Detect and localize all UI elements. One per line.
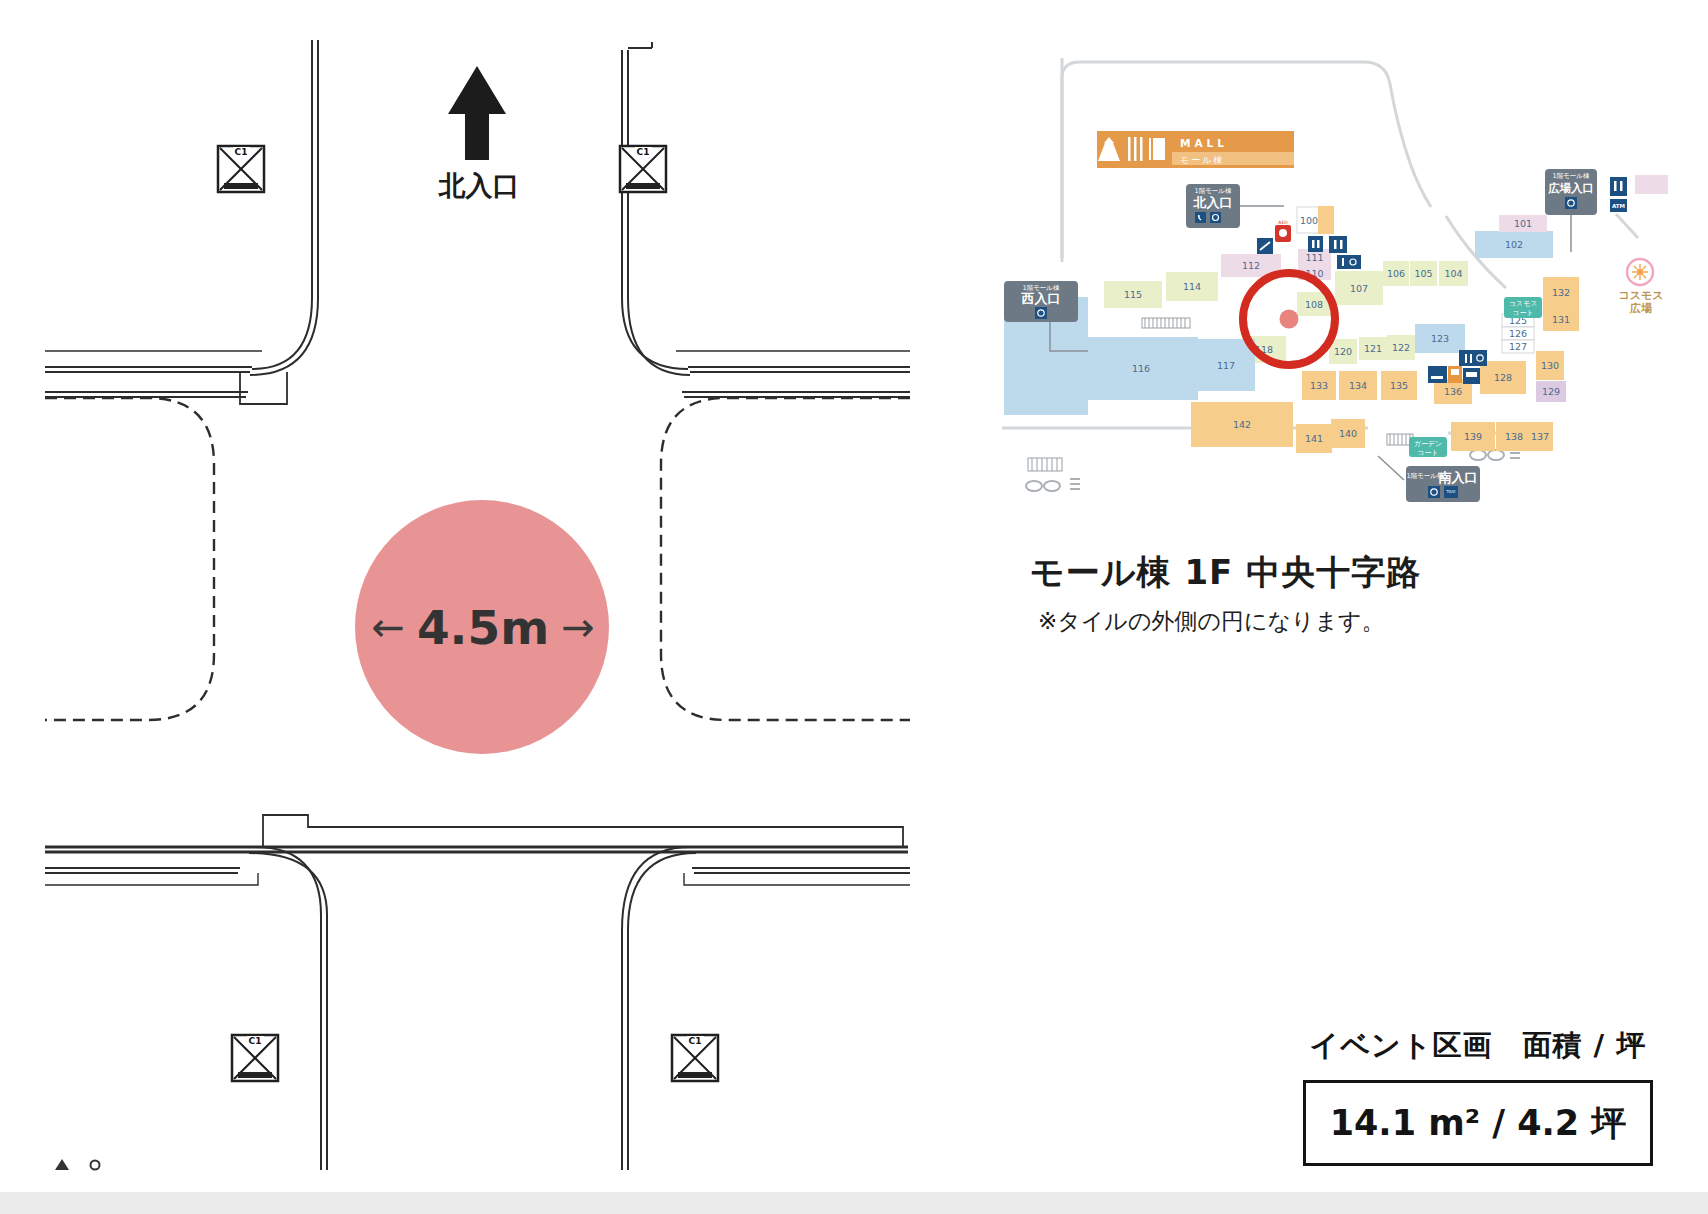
phone-icon xyxy=(1195,212,1206,223)
area-value: 14.1 m² / 4.2 坪 xyxy=(1330,1100,1627,1147)
column-label: C1 xyxy=(249,1036,262,1046)
smoking-icon xyxy=(1428,366,1447,383)
wall-band-bottom xyxy=(45,815,910,885)
atm-icon: ATM xyxy=(1610,199,1627,212)
shop-label: 135 xyxy=(1390,380,1408,391)
highlight-circle xyxy=(1243,273,1335,365)
crosswalk-hatch xyxy=(1028,458,1062,471)
plaza-label: 広場 xyxy=(1629,302,1653,315)
cutlery-icon xyxy=(1128,137,1143,161)
atm-label: ATM xyxy=(1612,203,1625,209)
dashed-zone-right xyxy=(661,398,910,720)
wheelchair-icon xyxy=(1035,307,1047,319)
shop-label: 139 xyxy=(1464,431,1482,442)
copy-machine-icon xyxy=(1463,368,1480,384)
mall-subtitle: モール棟 xyxy=(1180,155,1224,165)
column-marker: C1 xyxy=(218,146,264,192)
survey-marks xyxy=(55,1159,100,1170)
highlight-dot xyxy=(1280,310,1299,329)
shop-label: 126 xyxy=(1509,328,1527,339)
shop-label: 142 xyxy=(1233,419,1251,430)
shop-label: 132 xyxy=(1552,287,1570,298)
restroom-wheelchair-icon xyxy=(1459,350,1487,366)
shop-label: 133 xyxy=(1310,380,1328,391)
court-label: ガーデン xyxy=(1414,440,1443,448)
shop-label: 121 xyxy=(1364,343,1382,354)
shop-label: 140 xyxy=(1339,428,1357,439)
badge-west-entrance: 1階モール棟 西入口 xyxy=(1004,281,1078,322)
vending-icon xyxy=(1448,366,1462,383)
book-icon xyxy=(1149,138,1165,160)
shop-block xyxy=(1318,206,1334,234)
aed-icon: AED xyxy=(1275,220,1291,242)
shop-label: 107 xyxy=(1350,283,1368,294)
area-value-box: 14.1 m² / 4.2 坪 xyxy=(1303,1080,1653,1166)
court-label: コート xyxy=(1512,309,1533,317)
restroom-icon xyxy=(1329,236,1347,253)
court-label: コート xyxy=(1417,449,1438,457)
cosmos-court-badge: コスモス コート xyxy=(1504,297,1542,318)
badge-label: 北入口 xyxy=(1193,195,1233,210)
shop-label: 116 xyxy=(1132,363,1150,374)
column-label: C1 xyxy=(235,147,248,157)
badge-label: 南入口 xyxy=(1438,470,1478,485)
shop-label: 141 xyxy=(1305,433,1323,444)
column-label: C1 xyxy=(689,1036,702,1046)
shop-label: 112 xyxy=(1242,260,1260,271)
column-marker: C1 xyxy=(672,1035,718,1081)
escalator-icon xyxy=(1257,238,1273,254)
taxi-label: TAXI xyxy=(1446,489,1456,494)
shop-label: 127 xyxy=(1509,341,1527,352)
footer-strip xyxy=(0,1192,1708,1214)
badge-prefix: 1階モール棟 xyxy=(1553,172,1590,180)
badge-north-entrance: 1階モール棟 北入口 xyxy=(1186,184,1240,228)
dimension-label: 4.5m xyxy=(417,600,549,655)
badge-south-entrance: 1階モール棟 南入口 TAXI xyxy=(1406,466,1480,502)
badge-label: 広場入口 xyxy=(1547,181,1594,195)
restroom-icon xyxy=(1308,236,1323,252)
column-marker: C1 xyxy=(620,146,666,192)
page-title: モール棟 1F 中央十字路 xyxy=(1030,550,1421,596)
shop-label: 136 xyxy=(1444,386,1462,397)
shop-label: 122 xyxy=(1392,342,1410,353)
aed-label: AED xyxy=(1278,220,1288,225)
shop-label: 102 xyxy=(1505,239,1523,250)
shop-label: 123 xyxy=(1431,333,1449,344)
column-label: C1 xyxy=(637,147,650,157)
shop-label: 106 xyxy=(1387,268,1405,279)
north-label: 北入口 xyxy=(438,170,520,201)
restroom-icon xyxy=(1610,177,1627,196)
court-label: コスモス xyxy=(1509,300,1538,308)
shop-label: 137 xyxy=(1531,431,1549,442)
wheelchair-icon xyxy=(1210,212,1221,223)
minimap: 1001111101121141151071081181161171201211… xyxy=(1002,58,1708,502)
shop-label: 130 xyxy=(1541,360,1559,371)
mall-banner: MALL モール棟 xyxy=(1097,131,1294,168)
restroom-wheelchair-icon xyxy=(1337,255,1361,269)
shop-label: 134 xyxy=(1349,380,1367,391)
event-circle: ← 4.5m → xyxy=(355,500,609,754)
shop-label: 117 xyxy=(1217,360,1235,371)
shop-label: 105 xyxy=(1414,268,1432,279)
badge-label: 西入口 xyxy=(1021,291,1061,306)
wheelchair-icon xyxy=(1565,197,1577,209)
shop-label: 115 xyxy=(1124,289,1142,300)
shop-label: 101 xyxy=(1514,218,1532,229)
dashed-zone-left xyxy=(45,398,214,720)
badge-prefix: 1階モール棟 xyxy=(1195,187,1232,195)
shop-label: 111 xyxy=(1305,252,1323,263)
wall-bottom-left xyxy=(249,847,327,1170)
wall-top-left xyxy=(250,40,318,375)
cosmos-plaza: コスモス 広場 xyxy=(1618,259,1663,315)
north-arrow: 北入口 xyxy=(438,66,520,201)
shop-label: 128 xyxy=(1494,372,1512,383)
area-heading: イベント区画 面積 / 坪 xyxy=(1303,1026,1653,1066)
shop-label: 100 xyxy=(1300,215,1318,226)
badge-plaza-entrance: 1階モール棟 広場入口 xyxy=(1545,169,1597,215)
shop-block xyxy=(1635,175,1668,194)
wall-bottom-right xyxy=(622,847,696,1170)
garden-court-badge: ガーデン コート xyxy=(1409,437,1447,457)
column-marker: C1 xyxy=(232,1035,278,1081)
shop-label: 114 xyxy=(1183,281,1201,292)
dimension-arrow-left: ← xyxy=(371,604,405,650)
wall-top-right xyxy=(622,42,690,375)
wheelchair-icon xyxy=(1428,486,1440,498)
page-note: ※タイルの外側の円になります。 xyxy=(1038,606,1385,637)
shop-label: 108 xyxy=(1305,299,1323,310)
shop-label: 138 xyxy=(1505,431,1523,442)
event-area-section: イベント区画 面積 / 坪 14.1 m² / 4.2 坪 xyxy=(1303,1026,1653,1166)
mall-title: MALL xyxy=(1180,137,1228,149)
plaza-label: コスモス xyxy=(1618,289,1663,302)
shop-label: 129 xyxy=(1542,386,1560,397)
crosswalk-hatch xyxy=(1142,318,1190,328)
wall-band-top xyxy=(45,351,910,404)
shop-label: 120 xyxy=(1334,346,1352,357)
dimension-arrow-right: → xyxy=(561,604,595,650)
shop-label: 104 xyxy=(1444,268,1462,279)
shop-label: 131 xyxy=(1552,314,1570,325)
